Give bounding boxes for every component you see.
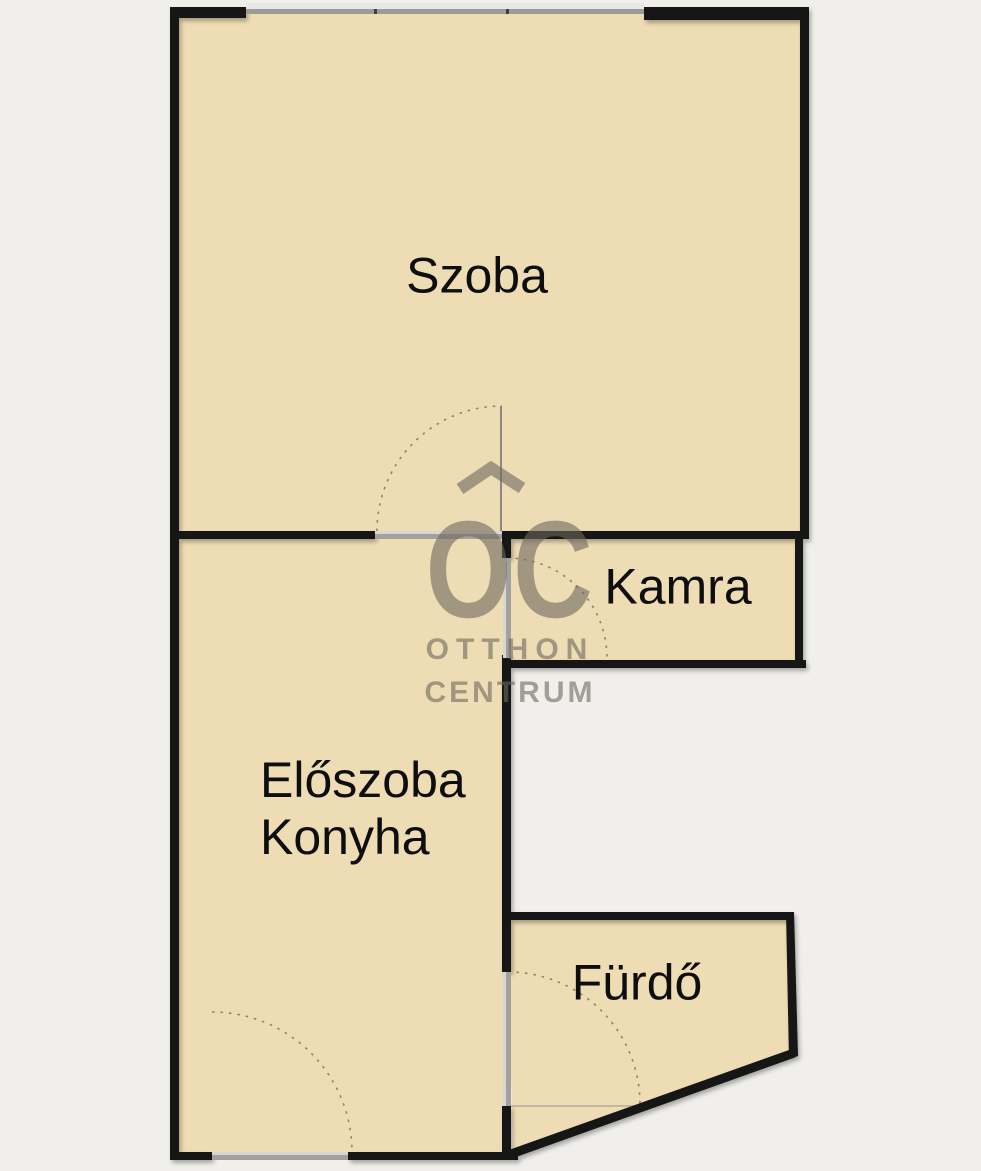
window-mullion-tick-1 [374,9,377,14]
opening-furdo-door [506,972,511,1106]
opening-kamra-door-light [503,558,506,658]
opening-entry-door-light [212,1152,348,1155]
wall-outer-left [170,8,179,1160]
room-label-eloszoba-konyha: Előszoba Konyha [260,752,466,866]
window-glass-light [246,3,644,9]
floor-plan-drawing [0,0,981,1171]
wall-outer-right-szoba [800,8,809,539]
wall-shared-vertical-middle [502,655,511,972]
room-label-konyha-line: Konyha [260,809,466,866]
room-furdo-fill [507,916,793,1152]
wall-kamra-bottom [502,660,806,668]
window-glass-line [246,9,644,14]
wall-divider-right [502,531,809,539]
opening-entry-door [212,1155,348,1160]
opening-szoba-door-light [375,531,502,534]
wall-divider-left [170,531,375,539]
wall-bottom-left-segment [170,1152,212,1160]
floor-plan: Szoba Kamra Előszoba Konyha Fürdő OC OTT… [0,0,981,1171]
wall-furdo-top [502,912,794,920]
opening-szoba-door [375,534,502,539]
opening-furdo-door-light [503,972,506,1106]
wall-top-left-segment [170,7,246,18]
room-label-kamra: Kamra [604,558,751,616]
opening-kamra-door [506,558,511,658]
wall-bottom-right-segment [348,1152,518,1160]
room-label-szoba: Szoba [406,247,548,305]
room-label-furdo: Fürdő [572,954,703,1012]
window-strip [246,3,644,14]
window-mullion-tick-2 [506,9,509,14]
room-label-eloszoba-line: Előszoba [260,752,466,809]
wall-kamra-right [795,531,803,668]
wall-top-right-segment [644,7,809,20]
wall-shared-vertical-lower [502,1106,511,1160]
wall-shared-vertical-upper [502,531,511,558]
